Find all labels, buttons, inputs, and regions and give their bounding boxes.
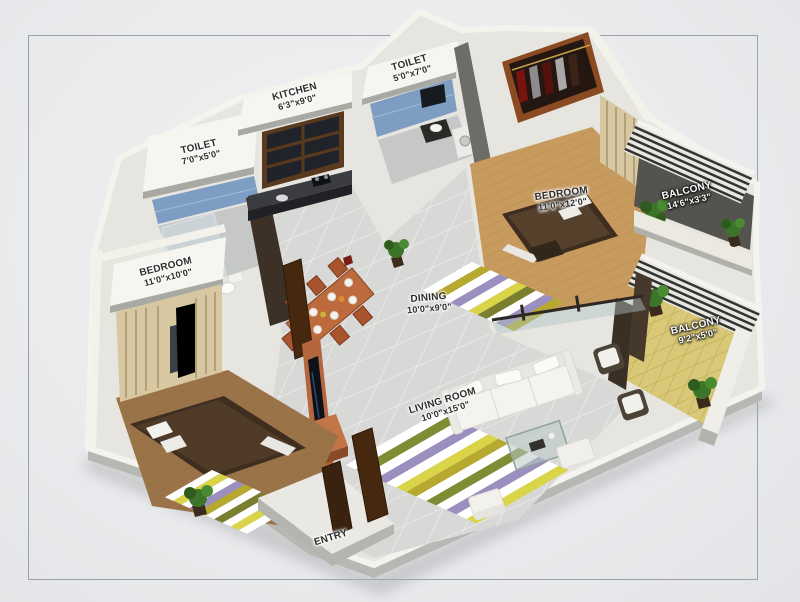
sink-basin bbox=[430, 124, 442, 132]
floor-plan-render: TOILET 7'0"x5'0" KITCHEN 6'3"x9'0" TOILE… bbox=[0, 0, 800, 602]
room-label-dining: DINING 10'0"x9'0" bbox=[406, 290, 453, 315]
floor-plan-canvas bbox=[0, 0, 800, 602]
